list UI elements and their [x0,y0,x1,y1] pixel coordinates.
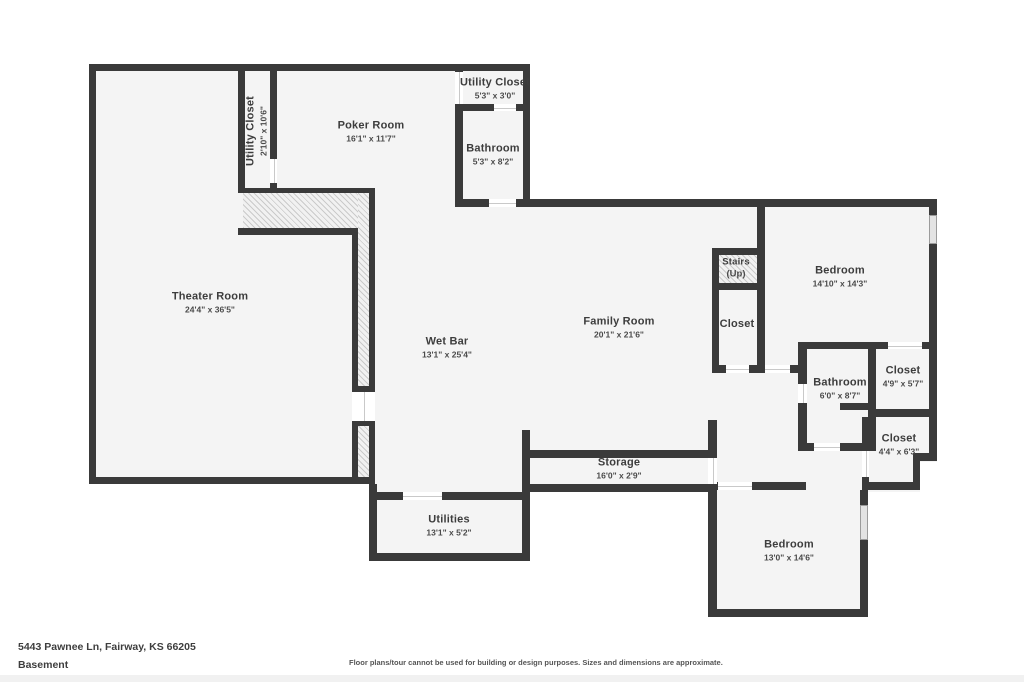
floor-level-label: Basement [18,659,68,671]
room-dims: 5'3" x 8'2" [466,156,520,167]
room-label-closet-49: Closet 4'9" x 5'7" [883,364,923,389]
floor-area [89,64,530,484]
wall [860,490,868,505]
door-opening [718,482,752,490]
room-dims: 4'9" x 5'7" [883,378,923,389]
room-label-wet-bar: Wet Bar 13'1" x 25'4" [422,335,472,360]
room-label-theater-room: Theater Room 24'4" x 36'5" [172,290,248,315]
wall [352,426,358,484]
room-label-bathroom-top: Bathroom 5'3" x 8'2" [466,142,520,167]
wall [238,188,375,193]
wall [860,540,868,617]
door-leaf-line [803,384,804,403]
door-opening [862,451,869,477]
door-opening [765,365,790,373]
room-name: Closet [883,364,923,378]
wall [455,104,463,207]
room-dims: 16'0" x 2'9" [596,470,641,481]
room-name: Bedroom [813,264,868,278]
door-leaf-line [888,346,922,347]
room-label-closet-under-stairs: Closet [720,318,755,332]
room-name: Theater Room [172,290,248,304]
wall [868,409,937,417]
wall [929,244,937,349]
room-dims: 13'0" x 14'6" [764,552,814,563]
room-name: Bathroom [466,142,520,156]
hatched-area [243,193,369,228]
wall [89,477,374,484]
room-dims: 6'0" x 8'7" [813,390,867,401]
wall [876,342,888,349]
door-leaf-line [718,486,752,487]
room-label-bedroom-lower: Bedroom 13'0" x 14'6" [764,538,814,563]
room-label-utility-closet-vertical: Utility Closet 2'10" x 10'6" [244,96,269,166]
wall [922,342,937,349]
wall [868,342,876,451]
wall [712,290,719,373]
room-label-closet-44: Closet 4'4" x 6'3" [879,432,919,457]
door-opening [494,104,516,111]
room-name: Closet [879,432,919,446]
wall [752,482,806,490]
room-dims: (Up) [722,269,750,282]
wall [89,64,96,484]
wall [369,484,377,561]
wall [712,248,719,290]
wall [929,349,937,461]
wall [442,492,530,500]
window [860,505,868,540]
wall [516,199,937,207]
wall [708,420,717,458]
wall [929,207,937,215]
wall [369,553,530,561]
room-label-family-room: Family Room 20'1" x 21'6" [583,315,654,340]
door-opening [403,492,442,500]
wall [708,482,717,617]
wall [862,477,869,485]
room-dims: 16'1" x 11'7" [338,133,405,144]
door-opening [708,458,717,484]
door-leaf-line [489,203,516,204]
window [929,215,937,244]
door-opening [798,384,807,403]
wall [712,248,764,255]
wall [352,228,358,386]
room-label-utilities: Utilities 13'1" x 5'2" [426,513,471,538]
room-name: Poker Room [338,119,405,133]
wall [862,417,869,451]
wall [516,104,530,111]
door-leaf-line [765,369,790,370]
door-opening [888,342,922,349]
door-opening [270,159,277,183]
floor-area [805,451,867,486]
wall [757,207,765,373]
wall [712,365,726,373]
room-dims: 14'10" x 14'3" [813,278,868,289]
room-dims: 13'1" x 25'4" [422,349,472,360]
wall [455,199,489,207]
door-leaf-line [814,447,840,448]
room-name: Storage [596,456,641,470]
hatched-area [358,193,369,386]
door-opening [489,199,516,207]
room-dims: 4'4" x 6'3" [879,446,919,457]
room-name: Bedroom [764,538,814,552]
door-opening [814,443,840,451]
room-dims: 5'3" x 3'0" [460,90,530,101]
hatched-area [358,426,369,477]
room-dims: 24'4" x 36'5" [172,304,248,315]
door-leaf-line [274,159,275,183]
wall [238,228,357,235]
wall [840,403,868,410]
door-leaf-line [364,392,365,421]
door-leaf-line [866,451,867,477]
room-label-stairs-up: Stairs (Up) [722,257,750,282]
wall [455,64,463,72]
floor-plan-canvas [0,0,1024,682]
door-leaf-line [403,496,442,497]
bottom-divider-bar [0,675,1024,682]
room-name: Wet Bar [422,335,472,349]
room-name: Utility Closet [460,76,530,90]
room-name: Bathroom [813,376,867,390]
disclaimer-text: Floor plans/tour cannot be used for buil… [349,658,723,667]
door-leaf-line [494,108,516,109]
room-name: Utility Closet [244,96,258,166]
door-opening [726,365,749,373]
room-name: Stairs [722,257,750,269]
wall [749,365,765,373]
wall [798,342,876,349]
wall [369,188,375,386]
wall [463,104,494,111]
wall [862,482,920,490]
door-opening [352,392,375,421]
door-leaf-line [713,458,714,484]
room-label-bathroom-right: Bathroom 6'0" x 8'7" [813,376,867,401]
room-name: Family Room [583,315,654,329]
room-label-storage: Storage 16'0" x 2'9" [596,456,641,481]
wall [369,426,375,484]
room-dims: 13'1" x 5'2" [426,527,471,538]
wall [708,609,868,617]
floor-plan-page: Theater Room 24'4" x 36'5" Utility Close… [0,0,1024,682]
room-dims: 2'10" x 10'6" [258,96,269,166]
wall [840,443,876,451]
wall [270,71,277,159]
room-dims: 20'1" x 21'6" [583,329,654,340]
room-name: Closet [720,318,755,332]
wall [798,443,814,451]
room-name: Utilities [426,513,471,527]
room-label-bedroom-upper: Bedroom 14'10" x 14'3" [813,264,868,289]
property-address: 5443 Pawnee Ln, Fairway, KS 66205 [18,641,196,653]
door-leaf-line [726,369,749,370]
wall [712,283,764,290]
room-label-utility-closet-top: Utility Closet 5'3" x 3'0" [460,76,530,101]
room-label-poker-room: Poker Room 16'1" x 11'7" [338,119,405,144]
wall [522,484,712,492]
wall [89,64,530,71]
